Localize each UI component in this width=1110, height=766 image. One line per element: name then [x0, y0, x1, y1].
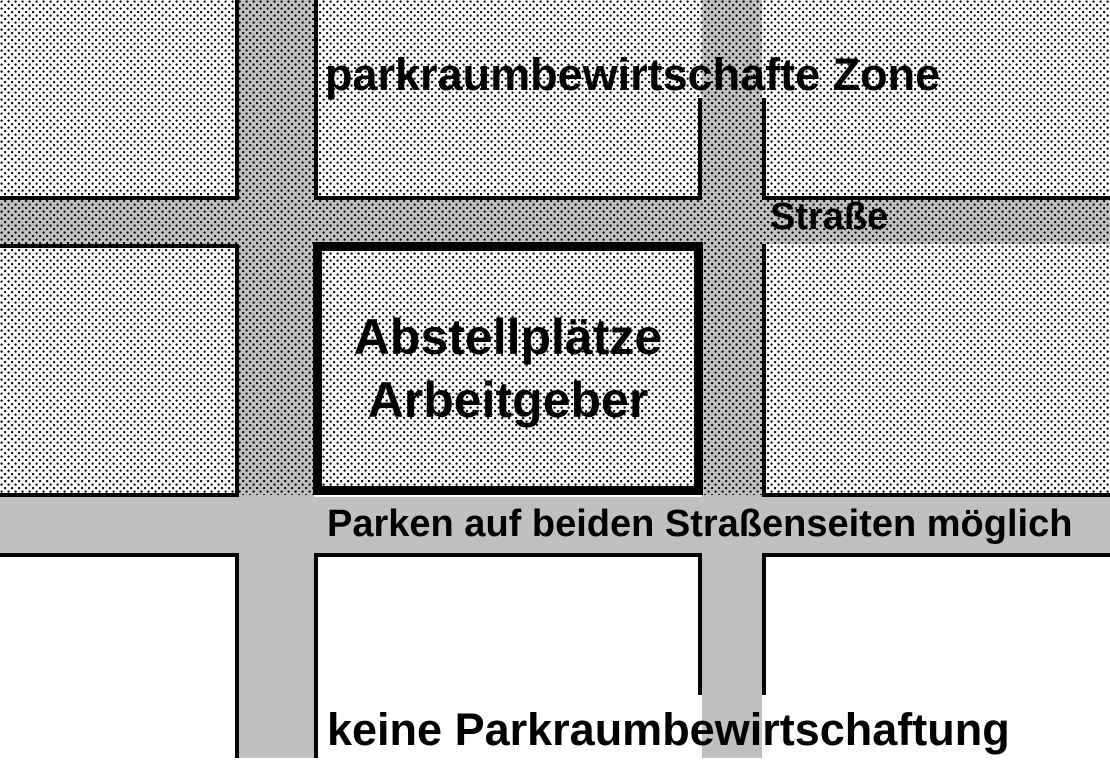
block-border-line: [235, 0, 239, 200]
block-border-line: [314, 196, 702, 200]
block-border-line: [0, 244, 239, 248]
no-parking-management-label: keine Parkraumbewirtschaftung: [327, 707, 1010, 752]
block-border-line: [235, 553, 239, 758]
block-border-line: [762, 244, 766, 497]
block-border-line: [698, 98, 702, 200]
employer-parking-label-line1: Abstellplätze: [354, 306, 662, 369]
managed-zone-label: parkraumbewirtschafte Zone: [325, 52, 940, 97]
block-border-line: [0, 196, 239, 200]
employer-parking-label-line2: Arbeitgeber: [354, 369, 662, 432]
block-border-line: [762, 553, 766, 695]
street-name-label: Straße: [770, 198, 888, 236]
block-border-line: [698, 553, 702, 695]
parking-both-sides-label: Parken auf beiden Straßenseiten möglich: [327, 505, 1072, 543]
parking-zone-diagram: Abstellplätze Arbeitgeber parkraumbewirt…: [0, 0, 1110, 766]
block-border-line: [235, 244, 239, 497]
block-border-line: [762, 98, 766, 200]
block-border-line: [314, 0, 318, 200]
block-border-line: [762, 553, 1110, 557]
employer-parking-block: Abstellplätze Arbeitgeber: [313, 242, 703, 495]
block-border-line: [314, 553, 318, 758]
employer-parking-label: Abstellplätze Arbeitgeber: [354, 306, 662, 432]
block-border-line: [762, 493, 1110, 497]
block-border-line: [0, 553, 239, 557]
block-border-line: [0, 493, 239, 497]
block-border-line: [314, 553, 702, 557]
